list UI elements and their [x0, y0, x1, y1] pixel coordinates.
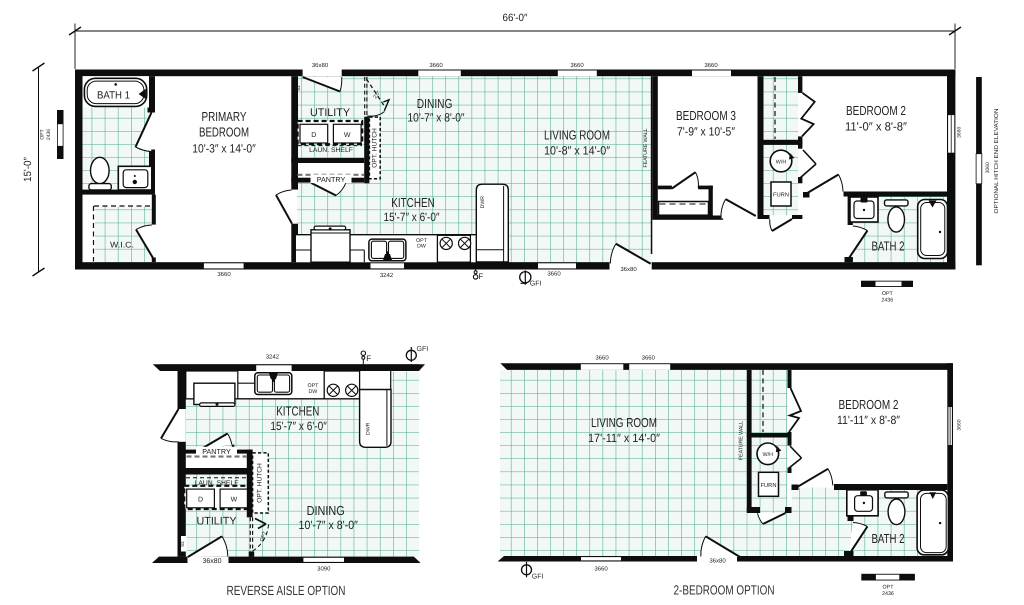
svg-text:BEDROOM 2: BEDROOM 2: [846, 103, 906, 118]
svg-text:F: F: [366, 354, 371, 363]
svg-text:3242: 3242: [380, 272, 394, 279]
svg-text:LIVING ROOM: LIVING ROOM: [591, 415, 657, 430]
svg-text:BATH 2: BATH 2: [872, 238, 905, 253]
svg-text:BATH 1: BATH 1: [97, 89, 130, 101]
svg-text:2-BEDROOM OPTION: 2-BEDROOM OPTION: [674, 583, 775, 598]
svg-text:36x80: 36x80: [709, 557, 726, 564]
svg-text:3660: 3660: [704, 62, 718, 69]
svg-text:83: 83: [296, 85, 301, 91]
svg-text:10'-7″ x 8'-0″: 10'-7″ x 8'-0″: [408, 111, 466, 125]
svg-text:FEATURE WALL: FEATURE WALL: [643, 128, 649, 167]
svg-text:DW: DW: [417, 244, 426, 250]
svg-text:BATH 2: BATH 2: [872, 531, 905, 546]
svg-text:PANTRY: PANTRY: [202, 447, 231, 456]
svg-text:DWR: DWR: [366, 422, 372, 435]
svg-text:10'-8″ x 14'-0″: 10'-8″ x 14'-0″: [544, 144, 611, 158]
svg-text:15'-0″: 15'-0″: [22, 157, 34, 182]
svg-text:BEDROOM 3: BEDROOM 3: [676, 108, 736, 123]
svg-text:3660: 3660: [594, 566, 608, 573]
svg-text:GFI: GFI: [530, 280, 542, 287]
svg-text:BEDROOM 2: BEDROOM 2: [839, 397, 899, 412]
svg-text:D: D: [198, 497, 203, 504]
svg-text:LAUN. SHELF: LAUN. SHELF: [309, 147, 353, 154]
svg-text:3060: 3060: [985, 162, 991, 173]
svg-text:10'-3″ x 14'-0″: 10'-3″ x 14'-0″: [192, 142, 256, 156]
svg-text:FURN: FURN: [773, 193, 789, 199]
svg-text:D: D: [311, 132, 316, 139]
svg-text:3660: 3660: [642, 355, 656, 362]
svg-text:15'-7″ x 6'-0″: 15'-7″ x 6'-0″: [270, 419, 327, 433]
svg-text:2436: 2436: [882, 591, 894, 597]
svg-text:OPT: OPT: [40, 129, 46, 139]
svg-text:UTILITY: UTILITY: [197, 516, 238, 528]
svg-text:36x80: 36x80: [202, 558, 221, 565]
svg-text:W.I.C.: W.I.C.: [110, 240, 134, 250]
svg-text:83: 83: [180, 541, 185, 547]
svg-text:W: W: [344, 132, 351, 139]
svg-text:FEATURE WALL: FEATURE WALL: [739, 421, 745, 460]
svg-text:11'-11″ x 8'-8″: 11'-11″ x 8'-8″: [837, 413, 901, 427]
svg-text:W/H: W/H: [763, 452, 774, 458]
svg-text:GFI: GFI: [417, 346, 429, 353]
svg-text:3090: 3090: [317, 566, 331, 573]
svg-text:11'-0″ x 8'-8″: 11'-0″ x 8'-8″: [845, 120, 908, 134]
svg-text:DINING: DINING: [307, 503, 345, 518]
svg-text:BEDROOM: BEDROOM: [199, 125, 249, 140]
svg-text:66'-0″: 66'-0″: [503, 12, 528, 24]
svg-text:3660: 3660: [217, 271, 231, 278]
svg-text:REVERSE AISLE OPTION: REVERSE AISLE OPTION: [227, 583, 346, 598]
svg-text:OPT. HUTCH: OPT. HUTCH: [257, 463, 264, 503]
svg-text:DWR: DWR: [480, 196, 486, 209]
svg-text:3660: 3660: [957, 419, 963, 430]
svg-text:3660: 3660: [570, 62, 584, 69]
svg-text:3660: 3660: [595, 355, 609, 362]
svg-text:17'-11″ x 14'-0″: 17'-11″ x 14'-0″: [588, 431, 661, 445]
svg-text:3242: 3242: [266, 354, 280, 361]
svg-text:DINING: DINING: [417, 96, 453, 111]
svg-text:UTILITY: UTILITY: [310, 107, 351, 119]
svg-text:FURN: FURN: [760, 483, 776, 489]
svg-text:W/H: W/H: [776, 159, 787, 165]
svg-text:OPT: OPT: [883, 585, 895, 591]
svg-text:3660: 3660: [547, 271, 561, 278]
svg-text:2436: 2436: [46, 129, 52, 140]
svg-text:KITCHEN: KITCHEN: [391, 195, 435, 210]
svg-text:LIVING ROOM: LIVING ROOM: [544, 128, 610, 143]
svg-text:36x80: 36x80: [620, 266, 637, 273]
svg-text:3660: 3660: [429, 62, 443, 69]
svg-text:F: F: [478, 272, 483, 281]
svg-text:W: W: [231, 497, 238, 504]
svg-text:36x80: 36x80: [312, 62, 329, 69]
svg-text:10'-7″ x 8'-0″: 10'-7″ x 8'-0″: [299, 518, 359, 532]
svg-text:OPTIONAL HITCH END ELEVATION: OPTIONAL HITCH END ELEVATION: [994, 109, 1000, 214]
svg-text:GFI: GFI: [532, 573, 544, 580]
svg-text:OPT: OPT: [882, 291, 894, 297]
svg-text:7'-9″ x 10'-5″: 7'-9″ x 10'-5″: [677, 125, 736, 139]
svg-text:PANTRY: PANTRY: [317, 175, 346, 184]
svg-text:2436: 2436: [881, 297, 893, 303]
svg-text:PRIMARY: PRIMARY: [202, 109, 247, 124]
svg-text:DW: DW: [308, 389, 317, 395]
svg-text:3660: 3660: [957, 127, 963, 138]
svg-text:15'-7″ x 6'-0″: 15'-7″ x 6'-0″: [384, 210, 441, 224]
svg-text:OPT. HUTCH: OPT. HUTCH: [371, 128, 378, 168]
svg-text:KITCHEN: KITCHEN: [276, 403, 319, 418]
